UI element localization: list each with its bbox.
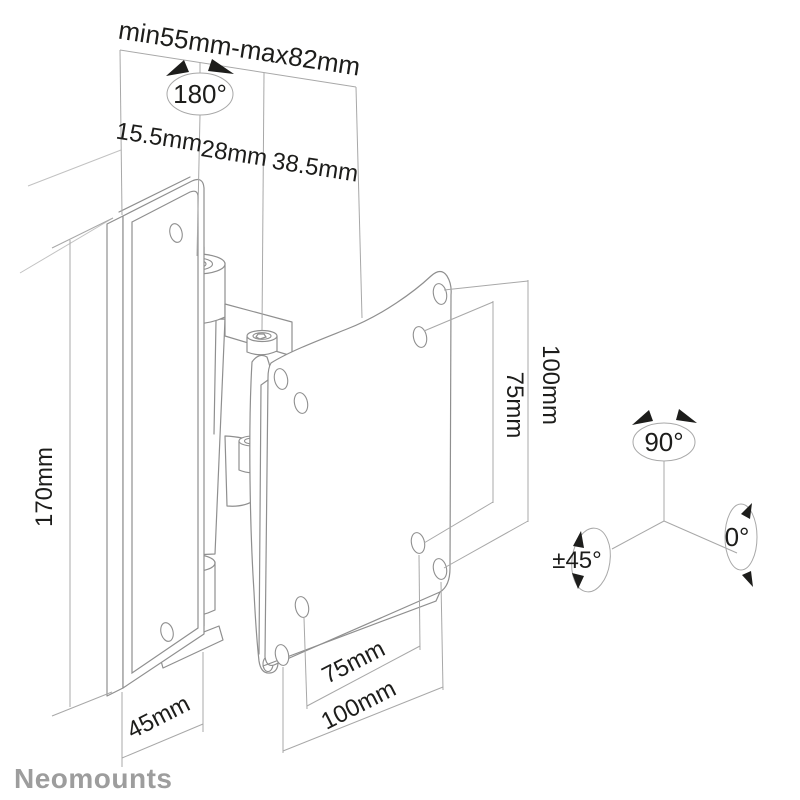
rotation-tilt-icon: ±45° [552,526,614,595]
wall-mount-diagram: min55mm-max82mm 15.5mm 28mm 38.5mm 180° … [0,0,800,800]
tilt-angle-label: ±45° [552,547,601,574]
rotation-axes: 90° 0° ±45° [552,409,757,594]
rotate-portrait-label: 90° [644,427,683,457]
technical-diagram-page: min55mm-max82mm 15.5mm 28mm 38.5mm 180° … [0,0,800,800]
brand-logo: Neomounts [14,763,173,794]
wall-plate [107,177,204,696]
dimension-left-height: 170mm [31,218,113,716]
rotation-0-icon: 0° [725,503,757,587]
depth-label: 45mm [123,690,195,744]
swivel-angle-label: 180° [173,79,227,109]
dim-segment-mid-label: 28mm [199,135,269,172]
dim-top-span-label: min55mm-max82mm [116,15,362,82]
level-angle-label: 0° [725,522,750,552]
rotation-90-icon: 90° [632,409,697,461]
wall-plate-front-face [123,180,204,688]
vesa-side-outer-label: 100mm [537,345,564,425]
dim-segment-left-label: 15.5mm [114,118,204,158]
wall-plate-side-face [107,216,123,696]
plate-height-label: 170mm [31,447,58,527]
vesa-side-inner-label: 75mm [501,372,528,439]
dim-segment-right-label: 38.5mm [270,148,360,188]
